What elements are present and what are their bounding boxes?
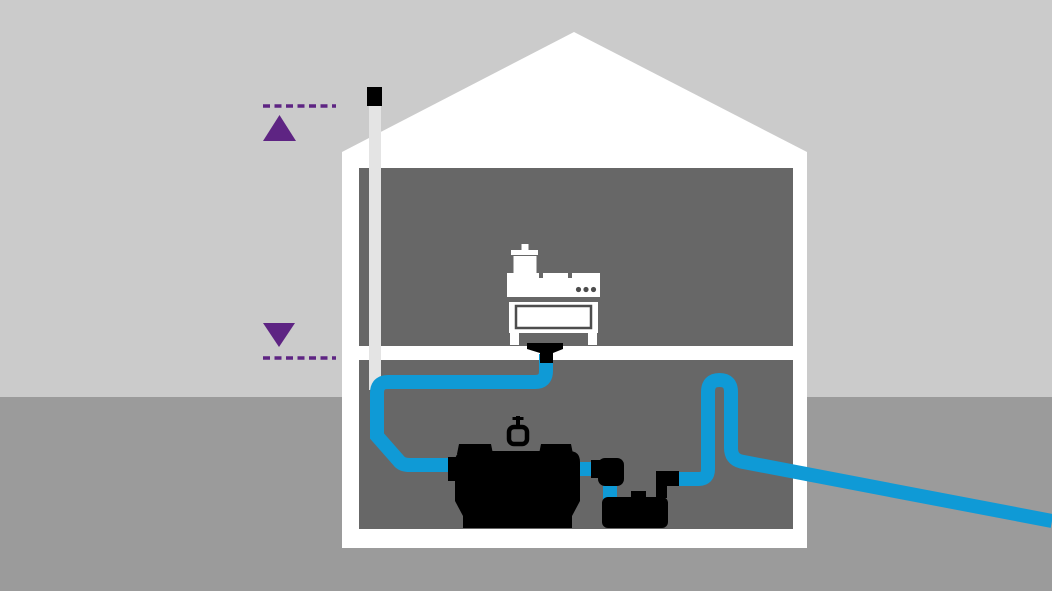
stove-knob-icon <box>583 287 588 292</box>
tank-body <box>455 451 580 528</box>
stove-leg-right <box>588 333 597 345</box>
stove-knob-icon <box>591 287 596 292</box>
oven-window <box>516 306 591 328</box>
pump-head <box>598 458 624 486</box>
vent-stack-pipe <box>369 104 381 390</box>
stove-cooktop <box>507 273 600 297</box>
burner-gap-left <box>539 273 543 278</box>
pump-body <box>602 497 668 528</box>
diagram-canvas <box>0 0 1052 591</box>
pot-lid <box>511 250 538 255</box>
tank-cap-left <box>457 444 493 454</box>
stove-knob-icon <box>576 287 581 292</box>
pump-body-tab <box>631 491 646 498</box>
burner-gap-right <box>568 273 572 278</box>
pot-lid-handle <box>522 244 529 250</box>
stove-leg-left <box>510 333 519 345</box>
valve-stem-crossbar <box>513 417 524 420</box>
vent-stack-cap <box>367 87 382 106</box>
cooking-pot <box>514 256 537 273</box>
vent-stack <box>367 87 382 390</box>
tank-cap-right <box>539 444 573 454</box>
